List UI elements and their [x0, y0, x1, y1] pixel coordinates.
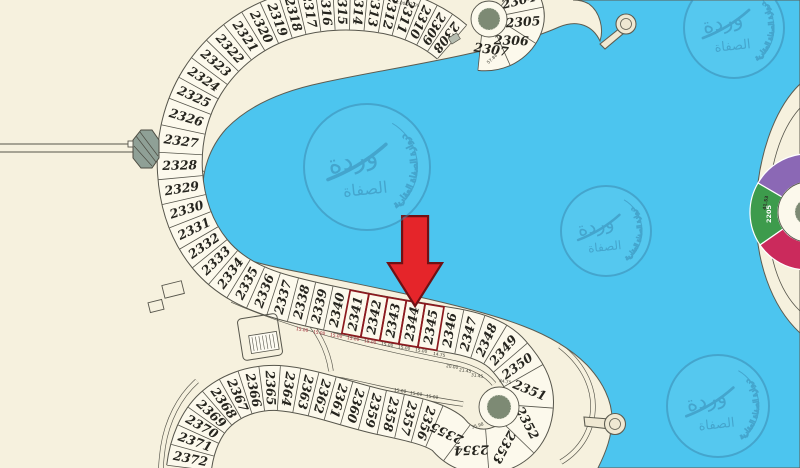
plot-number-2315: 2315 — [335, 0, 351, 25]
watermark-logo: وردةالصفاةدروازة الصفاة العقارية — [667, 355, 769, 457]
plot-number-2328: 2328 — [161, 157, 197, 173]
building-footprint — [249, 331, 279, 353]
plot-number-2314: 2314 — [350, 0, 367, 26]
light-platform-icon — [616, 14, 636, 34]
gate-notch — [128, 141, 133, 147]
plot-number-2305: 2305 — [504, 13, 541, 30]
watermark-logo: وردةالصفاةدروازة الصفاة العقارية — [561, 186, 651, 276]
light-platform-icon — [605, 414, 626, 435]
plot-map-image: 220541.53 230823092310231123122313231423… — [0, 0, 800, 468]
roundabout-south — [487, 395, 511, 419]
plot-number-2365: 2365 — [263, 369, 279, 405]
roundabout-north — [478, 8, 500, 30]
watermark-logo: وردةالصفاةدروازة الصفاة العقارية — [304, 104, 430, 230]
